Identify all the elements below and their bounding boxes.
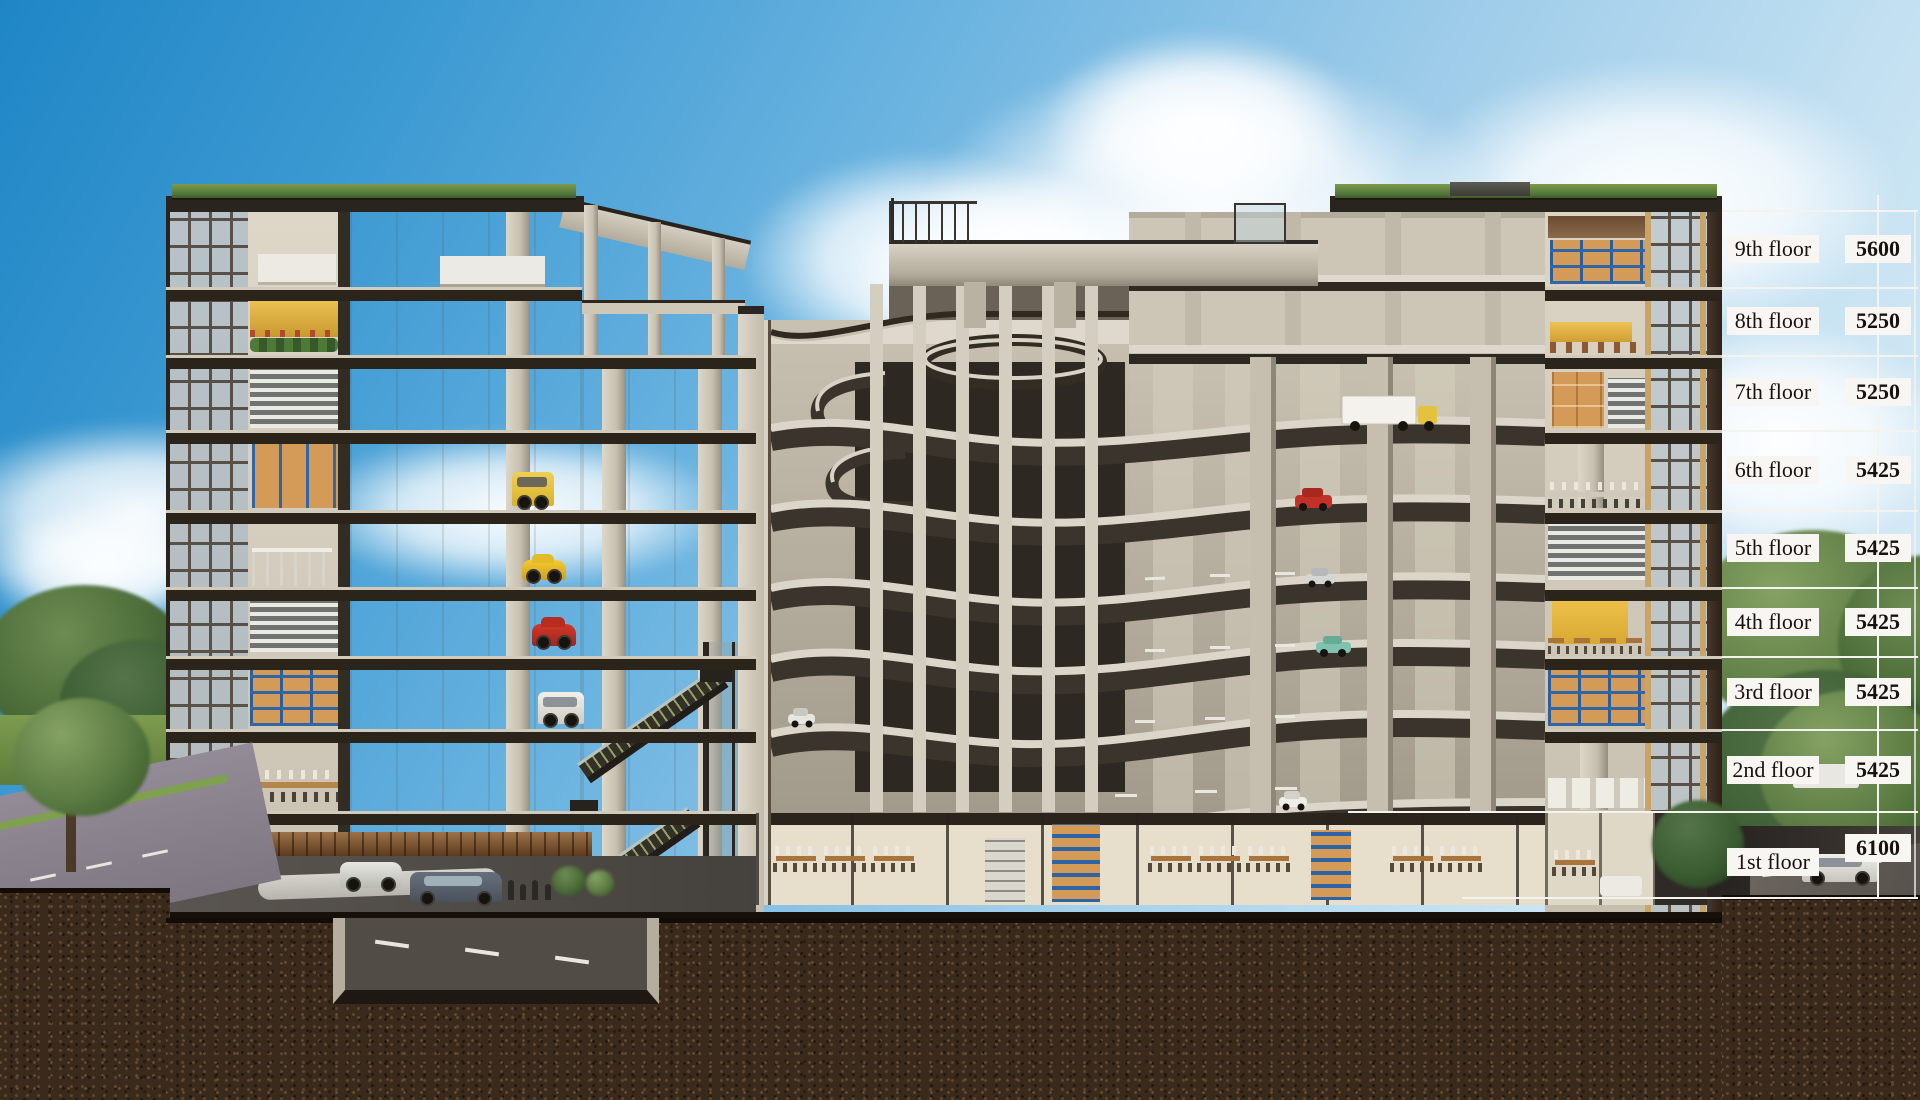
floor-annotation-row: 4th floor 5425: [1727, 608, 1917, 636]
floor-slab: [1545, 287, 1722, 301]
floor-label: 3rd floor: [1727, 678, 1819, 706]
cafeteria-table-group: [1148, 842, 1194, 888]
floor-slab: [166, 729, 756, 743]
shelving-5f-right: [1548, 518, 1660, 580]
sofa: [1600, 876, 1642, 896]
terrace-column: [712, 238, 725, 358]
floor-slab: [1545, 656, 1722, 670]
floor-height-dimension: 5425: [1845, 456, 1911, 484]
floor-label: 2nd floor: [1727, 756, 1819, 784]
cafe-people-8f: [250, 330, 338, 337]
shelving-4f: [250, 592, 338, 652]
plants-8f: [250, 338, 338, 352]
car-white-entrance: [340, 862, 402, 888]
floor-annotation-row: 5th floor 5425: [1727, 534, 1917, 562]
soil-cross-section: [0, 888, 170, 1100]
floor-height-dimension: 6100: [1845, 834, 1911, 862]
floor-label: 5th floor: [1727, 534, 1819, 562]
floor-label: 9th floor: [1727, 235, 1819, 263]
terrace-column: [648, 222, 661, 357]
floor-annotation-row: 7th floor 5250: [1727, 378, 1917, 406]
floor-slab: [1545, 430, 1722, 444]
shelving-7f: [250, 362, 338, 428]
floor-slab: [1545, 355, 1722, 369]
floor-annotation-row: 2nd floor 5425: [1727, 756, 1917, 784]
shelf-boxes-3f: [250, 662, 338, 726]
central-roof-slab: [889, 240, 1318, 286]
roof-railing: [889, 201, 977, 243]
floor-label: 1st floor: [1727, 848, 1819, 876]
person: [545, 884, 551, 900]
storage-shelf: [985, 838, 1025, 902]
cafeteria-table-group: [822, 842, 868, 888]
railing-5f: [252, 548, 332, 586]
dimension-line: [1722, 656, 1918, 658]
floor-slab: [166, 355, 756, 369]
floor-annotation-row: 9th floor 5600: [1727, 235, 1917, 263]
floor-label: 7th floor: [1727, 378, 1819, 406]
dimension-line: [1722, 729, 1918, 731]
floor-height-dimension: 5250: [1845, 378, 1911, 406]
dimension-line: [1722, 587, 1918, 589]
roof-mast: [891, 198, 894, 242]
floor-slab: [1545, 510, 1722, 524]
fixtures-2f-right: [1548, 778, 1658, 808]
dimension-line: [1348, 811, 1918, 813]
floor-height-dimension: 5250: [1845, 307, 1911, 335]
floor-height-dimension: 5600: [1845, 235, 1911, 263]
van-white-3f: [538, 692, 584, 724]
floor-annotation-row: 8th floor 5250: [1727, 307, 1917, 335]
shelf-boxes-9f: [1550, 240, 1658, 284]
person: [520, 884, 526, 900]
cafeteria-table-group: [1390, 842, 1436, 888]
cafeteria-table-group: [1438, 842, 1484, 888]
basement-parking: [333, 918, 659, 1004]
planter: [552, 866, 586, 896]
soil-cross-section: [1722, 895, 1920, 1100]
balcony-rail-9f: [258, 254, 336, 285]
cafeteria-table-group: [871, 842, 917, 888]
floor-height-dimension: 5425: [1845, 678, 1911, 706]
road-marking: [555, 956, 589, 965]
cafe-stools-8f-right: [1550, 342, 1650, 353]
floor-slab: [1545, 587, 1722, 601]
tables-4f-right: [1548, 634, 1660, 654]
floor-annotation-row: 1st floor 6100: [1727, 842, 1917, 870]
terrace-column: [584, 205, 598, 357]
dimension-line: [1722, 430, 1918, 432]
van-window: [543, 697, 577, 707]
rooftop-garden: [172, 184, 576, 200]
floor-slab: [166, 510, 756, 524]
floor-height-dimension: 5425: [1845, 534, 1911, 562]
cafeteria-table-group: [773, 842, 819, 888]
cafeteria-table-group: [1552, 846, 1598, 892]
vehicle-ramp-atrium: [755, 212, 1545, 905]
floor-height-dimension: 5425: [1845, 756, 1911, 784]
boxes-7f-right: [1552, 372, 1604, 428]
cafe-counter-8f-right: [1550, 322, 1632, 342]
roof-penthouse: [1450, 182, 1530, 196]
planter: [586, 870, 614, 896]
dimension-line: [1722, 355, 1918, 357]
dimension-line: [1462, 897, 1918, 899]
floor-height-dimension: 5425: [1845, 608, 1911, 636]
car-red-4f: [532, 624, 576, 646]
road-marking: [375, 940, 409, 949]
floor-label: 4th floor: [1727, 608, 1819, 636]
road-marking: [465, 948, 499, 957]
floor-slab: [166, 587, 756, 601]
floor-slab: [1545, 729, 1722, 743]
car-sedan-entrance: [410, 872, 502, 902]
floor-slab: [166, 287, 582, 301]
car-windows: [424, 876, 482, 886]
car-cabin: [532, 554, 554, 563]
floor-slab: [166, 656, 756, 670]
dimension-line: [1722, 287, 1918, 289]
van-yellow-6f: [512, 472, 554, 506]
car-yellow-5f: [522, 560, 566, 580]
floor-annotation-row: 6th floor 5425: [1727, 456, 1917, 484]
cafeteria-table-group: [1246, 842, 1292, 888]
architectural-cross-section: 9th floor 5600 8th floor 5250 7th floor …: [0, 0, 1920, 1100]
terrace-beam: [582, 300, 745, 314]
person: [508, 880, 514, 900]
tree: [14, 698, 150, 816]
dimension-line: [1722, 510, 1918, 512]
boxes-6f: [252, 438, 338, 508]
office-desks-6f-right: [1548, 480, 1660, 508]
blue-rack: [1052, 824, 1100, 902]
dimension-line: [1722, 210, 1918, 212]
mezzanine-rail: [440, 256, 545, 287]
floor-label: 6th floor: [1727, 456, 1819, 484]
roof-pillar: [964, 282, 986, 328]
floor-annotation-row: 3rd floor 5425: [1727, 678, 1917, 706]
van-window: [517, 477, 547, 487]
roof-pillar: [1054, 282, 1076, 328]
floor-slab: [166, 430, 756, 444]
escalator-landing: [700, 668, 732, 682]
person: [532, 880, 538, 900]
floor-label: 8th floor: [1727, 307, 1819, 335]
cafeteria-table-group: [1197, 842, 1243, 888]
roof-glass-railing: [1234, 203, 1286, 244]
car-cabin: [541, 617, 565, 627]
blue-rack: [1311, 830, 1351, 900]
